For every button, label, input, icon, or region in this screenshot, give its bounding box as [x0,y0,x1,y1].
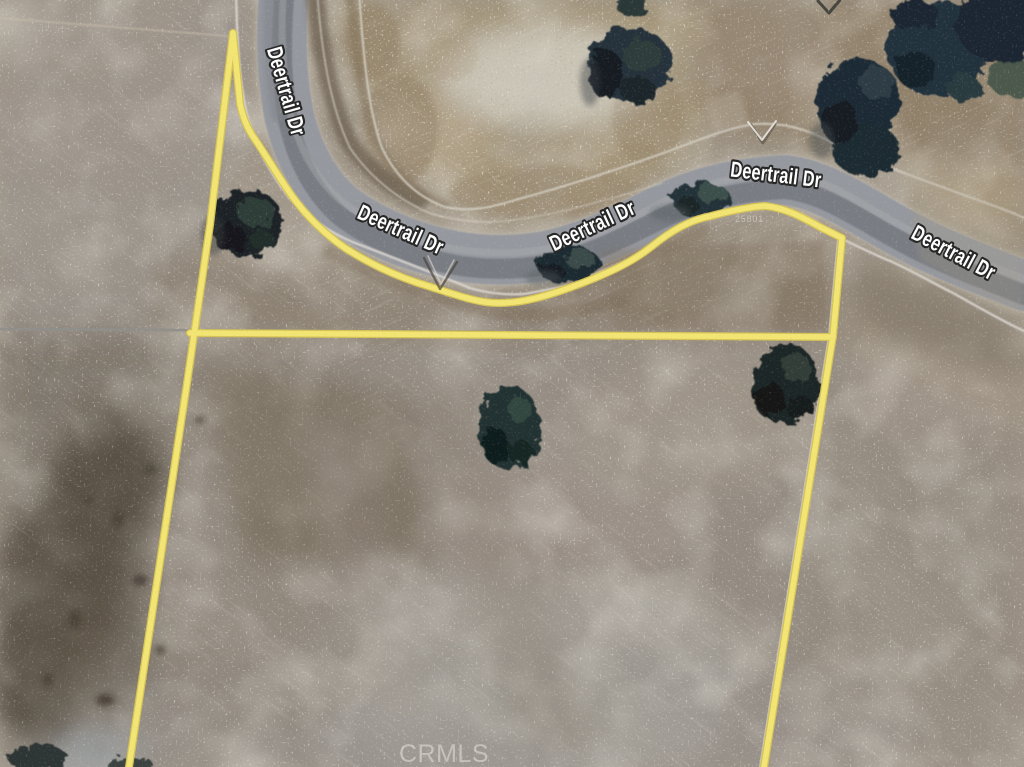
svg-text:CRMLS: CRMLS [399,740,489,767]
